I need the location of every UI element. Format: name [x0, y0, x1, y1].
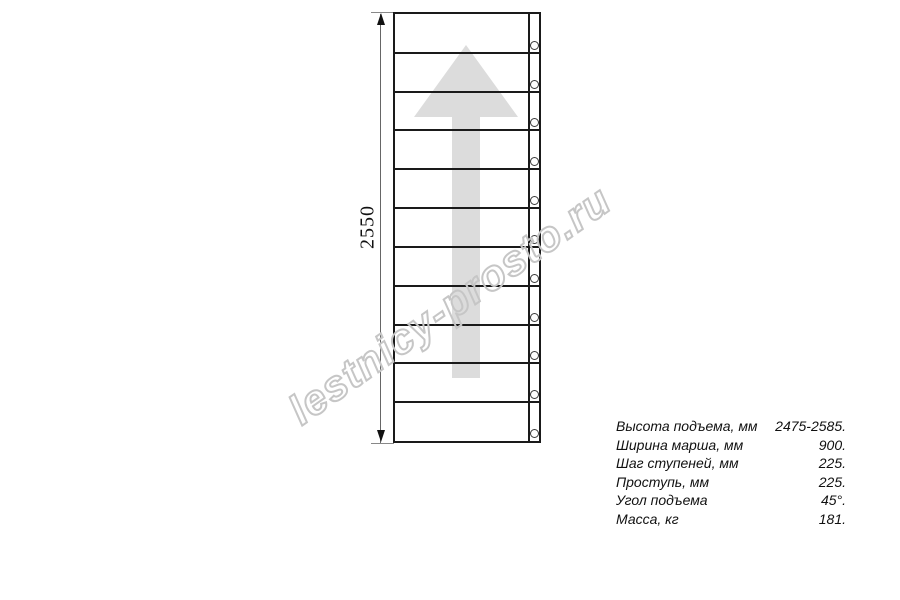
dimension-label: 2550 — [357, 205, 380, 249]
spec-row: Шаг ступеней, мм225. — [616, 454, 846, 473]
spec-value: 45°. — [821, 491, 846, 510]
bolt-circle — [530, 41, 539, 50]
spec-value: 225. — [819, 454, 846, 473]
spec-row: Проступь, мм225. — [616, 473, 846, 492]
step-divider — [395, 324, 539, 326]
step-divider — [395, 91, 539, 93]
spec-row: Высота подъема, мм2475-2585. — [616, 417, 846, 436]
bolt-circle — [530, 351, 539, 360]
spec-value: 2475-2585. — [775, 417, 846, 436]
bolt-circle — [530, 235, 539, 244]
spec-label: Высота подъема, мм — [616, 417, 758, 436]
step-divider — [395, 285, 539, 287]
bolt-circle — [530, 313, 539, 322]
spec-row: Угол подъема45°. — [616, 491, 846, 510]
bolt-circle — [530, 390, 539, 399]
spec-value: 181. — [819, 510, 846, 529]
step-divider — [395, 129, 539, 131]
bolt-circle — [530, 157, 539, 166]
bolt-circle — [530, 429, 539, 438]
spec-row: Масса, кг181. — [616, 510, 846, 529]
bolt-circle — [530, 196, 539, 205]
bolt-circle — [530, 80, 539, 89]
dimension-arrow-up-icon — [377, 13, 385, 25]
bolt-circle — [530, 274, 539, 283]
extension-line-bottom — [371, 443, 394, 444]
staircase-plan — [393, 12, 541, 443]
spec-label: Проступь, мм — [616, 473, 709, 492]
step-divider — [395, 246, 539, 248]
spec-row: Ширина марша, мм900. — [616, 436, 846, 455]
step-divider — [395, 401, 539, 403]
step-divider — [395, 168, 539, 170]
spec-value: 900. — [819, 436, 846, 455]
spec-label: Угол подъема — [616, 491, 708, 510]
spec-label: Масса, кг — [616, 510, 679, 529]
dimension-arrow-down-icon — [377, 430, 385, 442]
step-divider — [395, 52, 539, 54]
bolt-circle — [530, 118, 539, 127]
spec-value: 225. — [819, 473, 846, 492]
specs-table: Высота подъема, мм2475-2585.Ширина марша… — [616, 417, 846, 528]
spec-label: Шаг ступеней, мм — [616, 454, 739, 473]
dimension-line — [380, 14, 381, 443]
spec-label: Ширина марша, мм — [616, 436, 743, 455]
step-divider — [395, 362, 539, 364]
stringer-line — [528, 14, 530, 441]
step-divider — [395, 207, 539, 209]
